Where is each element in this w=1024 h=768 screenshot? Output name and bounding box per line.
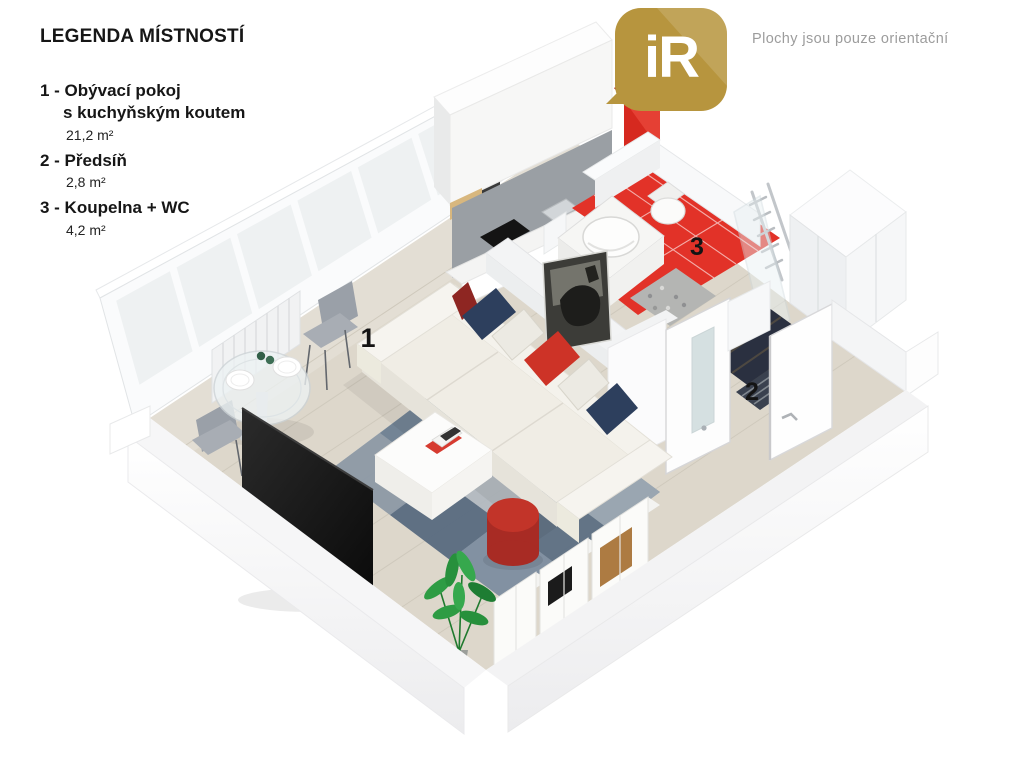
ir-logo: iR [615,8,727,111]
door-handle [701,425,706,430]
floorplan-image: 1 2 3 LEGENDA MÍSTNOSTÍ 1 - Obývací poko… [0,0,1024,768]
legend-item-label: 1 - Obývací pokoj [40,80,330,102]
plate [273,357,301,377]
pouf [483,498,543,570]
disclaimer-text: Plochy jsou pouze orientační [752,31,949,47]
room-label-1: 1 [360,323,375,353]
room-label-2: 2 [745,378,759,406]
legend-title: LEGENDA MÍSTNOSTÍ [40,26,330,48]
legend-item-area: 2,8 m² [40,172,330,193]
bottle [257,352,265,360]
legend-item-label: s kuchyňským koutem [40,102,330,124]
legend-item: 3 - Koupelna + WC 4,2 m² [40,197,330,240]
legend-item-area: 21,2 m² [40,125,330,146]
room-legend: LEGENDA MÍSTNOSTÍ 1 - Obývací pokoj s ku… [40,26,330,245]
legend-item: 1 - Obývací pokoj s kuchyňským koutem 21… [40,80,330,146]
room-label-3: 3 [690,233,704,261]
legend-item-area: 4,2 m² [40,220,330,241]
plate [226,370,254,390]
logo-text: iR [644,29,698,87]
legend-item-label: 2 - Předsíň [40,150,330,172]
legend-item-label: 3 - Koupelna + WC [40,197,330,219]
bottle [266,356,274,364]
legend-item: 2 - Předsíň 2,8 m² [40,150,330,193]
